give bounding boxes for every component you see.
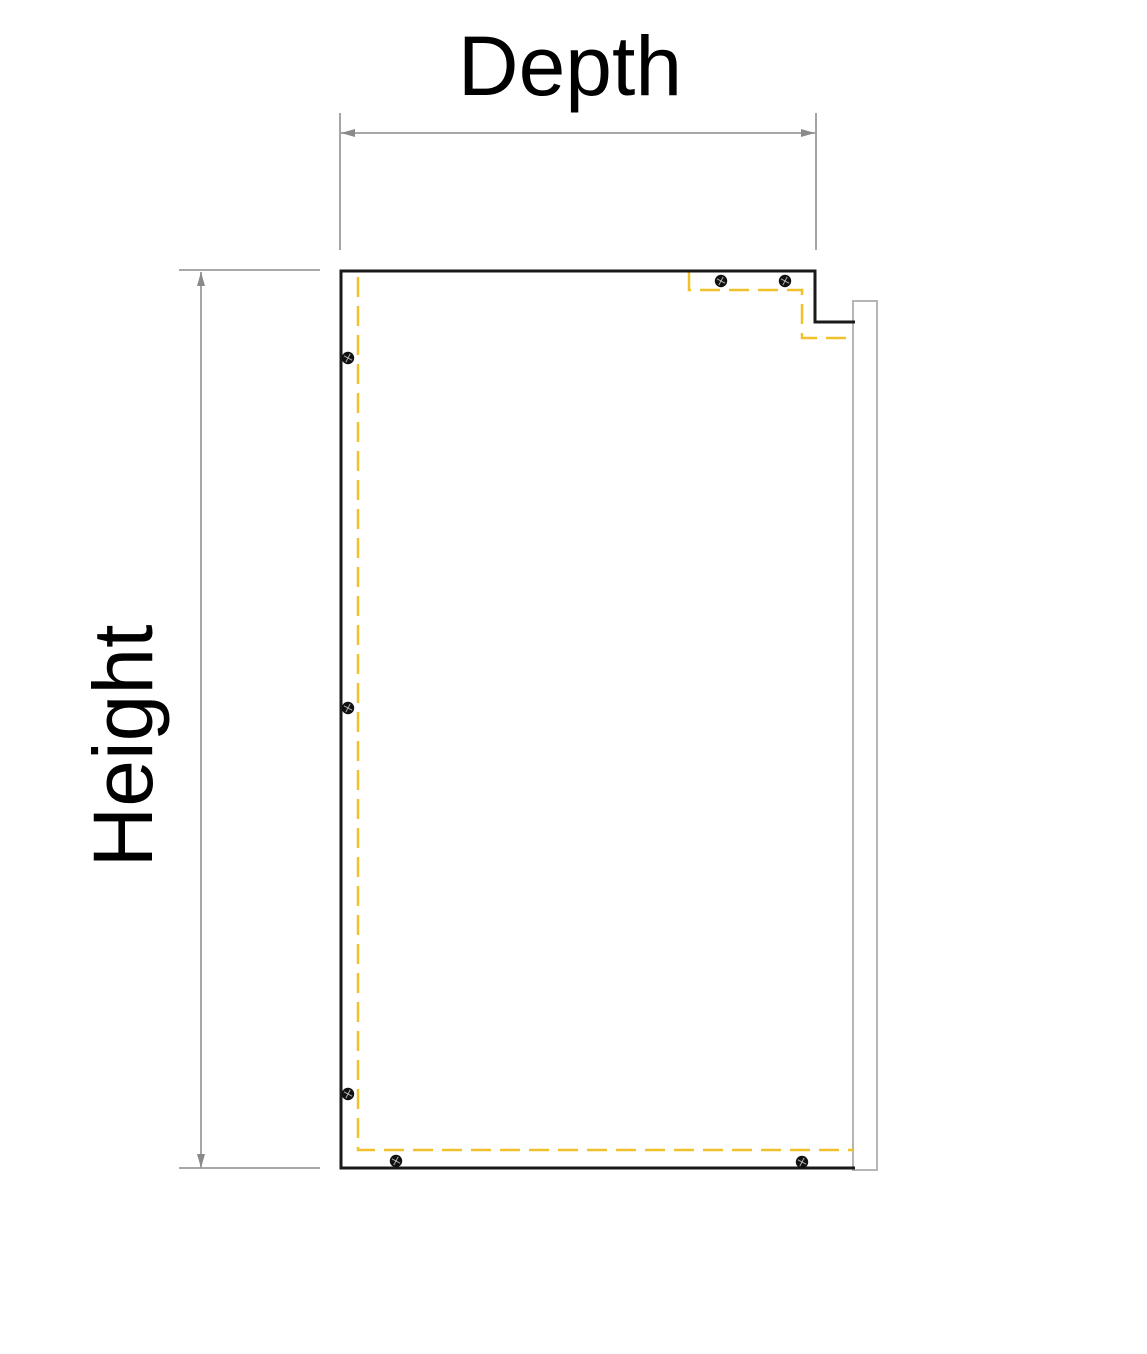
hidden-lines-group xyxy=(358,272,853,1150)
drawing-svg xyxy=(0,0,1147,1354)
wall-panel-rect xyxy=(853,301,877,1170)
technical-drawing-canvas: Depth Height xyxy=(0,0,1147,1354)
hidden-dashed-line xyxy=(689,272,853,338)
wall-panel-group xyxy=(853,301,877,1170)
mounting-screws-group xyxy=(342,275,808,1168)
dimension-arrowhead xyxy=(197,1154,205,1168)
screw-icon xyxy=(390,1155,402,1167)
hidden-dashed-line xyxy=(358,277,853,1150)
screw-icon xyxy=(342,1088,354,1100)
dimension-arrowhead xyxy=(341,129,355,137)
dimension-arrowhead xyxy=(197,272,205,286)
screw-icon xyxy=(796,1156,808,1168)
height-dimension-label: Height xyxy=(81,625,165,868)
screw-icon xyxy=(342,702,354,714)
side-panel-outline-group xyxy=(341,271,855,1168)
screw-icon xyxy=(342,352,354,364)
side-panel-outline xyxy=(341,271,855,1168)
depth-dimension-label: Depth xyxy=(430,24,710,108)
dimension-arrowhead xyxy=(801,129,815,137)
screw-icon xyxy=(715,275,727,287)
screw-icon xyxy=(779,275,791,287)
